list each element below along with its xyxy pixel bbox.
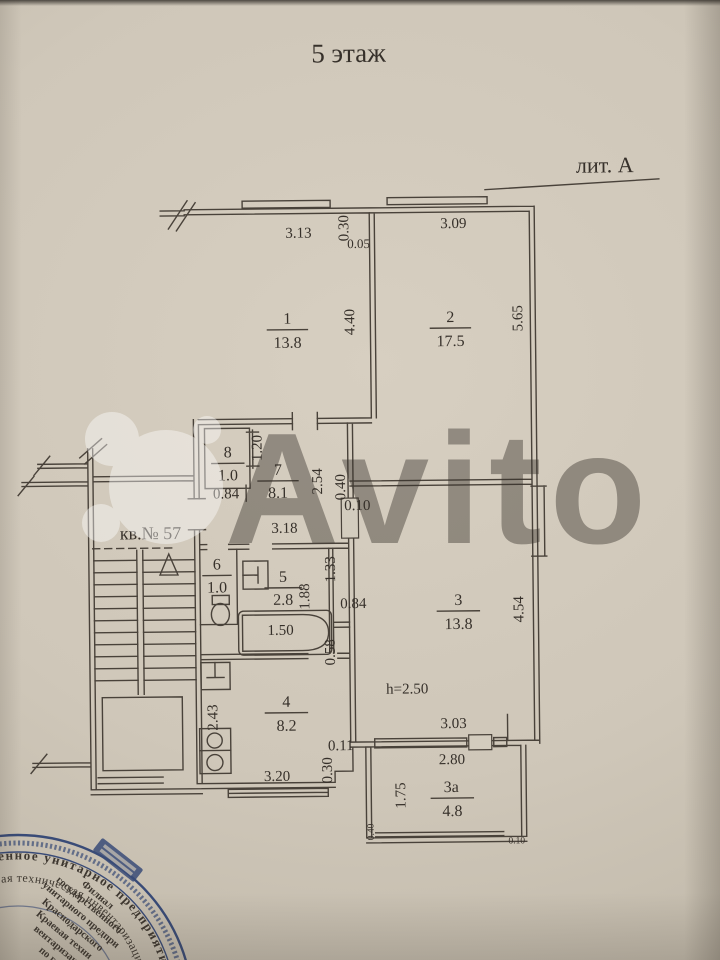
dimension-label: 4.54 bbox=[511, 596, 527, 623]
room-number-label: 6 bbox=[213, 556, 221, 573]
stair-steps bbox=[94, 560, 196, 681]
dimension-label: 0.11 bbox=[328, 738, 354, 754]
photo-top-edge bbox=[0, 0, 720, 6]
dimension-label: 5.65 bbox=[510, 305, 526, 331]
room-area-label: 8.2 bbox=[276, 718, 296, 735]
stove-burner-icon bbox=[207, 733, 222, 748]
room-number-label: 3а bbox=[444, 779, 459, 796]
room-area-label: 13.8 bbox=[273, 335, 301, 352]
dimension-label: 0.10 bbox=[508, 836, 525, 846]
dimension-label: 3.20 bbox=[264, 769, 290, 785]
official-stamp: енное унитарное предприятие Кра ая техни… bbox=[0, 835, 193, 960]
dimension-label: 3.03 bbox=[440, 716, 466, 732]
room-area-label: 13.8 bbox=[444, 616, 472, 633]
toilet-bowl-icon bbox=[211, 603, 229, 625]
dimension-label: 0.40 bbox=[367, 823, 377, 840]
dimension-label: 1.75 bbox=[393, 782, 409, 808]
stair-edge-dashed bbox=[93, 548, 175, 549]
avito-watermark-text: Avito bbox=[225, 401, 654, 577]
dimension-label: 4.40 bbox=[342, 309, 358, 335]
room-number-label: 4 bbox=[282, 694, 290, 711]
liter-underline bbox=[485, 179, 659, 190]
room-area-label: 17.5 bbox=[436, 333, 464, 350]
dimension-label: 3.09 bbox=[440, 216, 466, 232]
room-area-label: 1.0 bbox=[207, 579, 227, 596]
avito-watermark: Avito bbox=[82, 401, 654, 577]
dimension-label: 2.80 bbox=[439, 752, 465, 768]
room-number-label: 1 bbox=[283, 311, 291, 328]
dimension-label: 1.50 bbox=[267, 623, 293, 639]
room-area-label: 4.8 bbox=[442, 803, 462, 820]
dimension-label: 0.30 bbox=[320, 757, 336, 783]
door-room3-balcony bbox=[469, 735, 492, 750]
dimension-label: 3.13 bbox=[285, 225, 311, 241]
dimension-label: 0.84 bbox=[340, 596, 367, 612]
liter-label: лит. А bbox=[576, 152, 634, 178]
room-number-label: 2 bbox=[446, 309, 454, 326]
avito-logo-icon bbox=[82, 412, 223, 544]
dimension-label: 0.05 bbox=[347, 236, 370, 251]
stove-burner-icon bbox=[207, 754, 223, 770]
floor-plan-photo: 5 этаж лит. А bbox=[0, 0, 720, 960]
dimension-label: h=2.50 bbox=[386, 681, 428, 697]
page-title: 5 этаж bbox=[311, 38, 386, 69]
dimension-label: 2.43 bbox=[205, 704, 221, 730]
room-number-label: 3 bbox=[454, 592, 462, 609]
room-area-label: 2.8 bbox=[273, 592, 293, 609]
floor-plan-drawing: 5 этаж лит. А bbox=[0, 0, 720, 960]
dimension-label: 1.88 bbox=[297, 583, 313, 609]
dimension-label: 0.58 bbox=[323, 639, 339, 665]
